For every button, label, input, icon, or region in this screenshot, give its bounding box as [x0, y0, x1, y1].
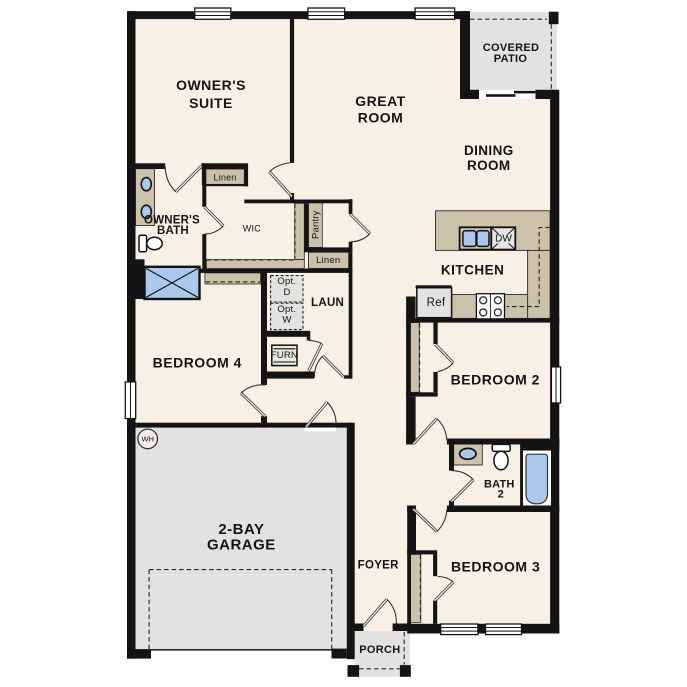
svg-text:BEDROOM 4: BEDROOM 4: [153, 354, 242, 370]
svg-text:DINING: DINING: [464, 143, 514, 158]
svg-text:BEDROOM 2: BEDROOM 2: [451, 372, 540, 388]
svg-text:W: W: [282, 314, 291, 325]
svg-text:PATIO: PATIO: [494, 53, 528, 65]
svg-text:GARAGE: GARAGE: [207, 537, 276, 554]
svg-text:WIC: WIC: [243, 224, 262, 234]
svg-text:SUITE: SUITE: [189, 95, 233, 111]
svg-text:LAUN: LAUN: [311, 297, 344, 309]
svg-text:2: 2: [498, 489, 504, 501]
svg-text:OWNER'S: OWNER'S: [176, 77, 246, 93]
svg-text:ROOM: ROOM: [467, 158, 511, 173]
svg-text:FOYER: FOYER: [358, 559, 400, 571]
svg-text:ROOM: ROOM: [358, 110, 404, 126]
svg-text:D: D: [283, 287, 290, 298]
svg-text:Ref: Ref: [427, 297, 446, 309]
svg-text:FURN: FURN: [271, 350, 298, 361]
svg-text:PORCH: PORCH: [359, 644, 400, 656]
svg-text:WH: WH: [141, 435, 154, 444]
svg-text:BEDROOM 3: BEDROOM 3: [451, 558, 540, 574]
svg-text:Linen: Linen: [213, 172, 236, 182]
svg-text:Linen: Linen: [316, 255, 340, 266]
svg-text:Opt.: Opt.: [277, 304, 296, 315]
svg-text:Pantry: Pantry: [310, 210, 321, 239]
svg-text:DW: DW: [495, 233, 512, 244]
svg-text:KITCHEN: KITCHEN: [441, 263, 505, 278]
svg-text:2-BAY: 2-BAY: [218, 521, 264, 538]
svg-text:Opt.: Opt.: [277, 276, 296, 287]
svg-text:BATH: BATH: [157, 225, 189, 237]
svg-text:GREAT: GREAT: [355, 93, 405, 109]
